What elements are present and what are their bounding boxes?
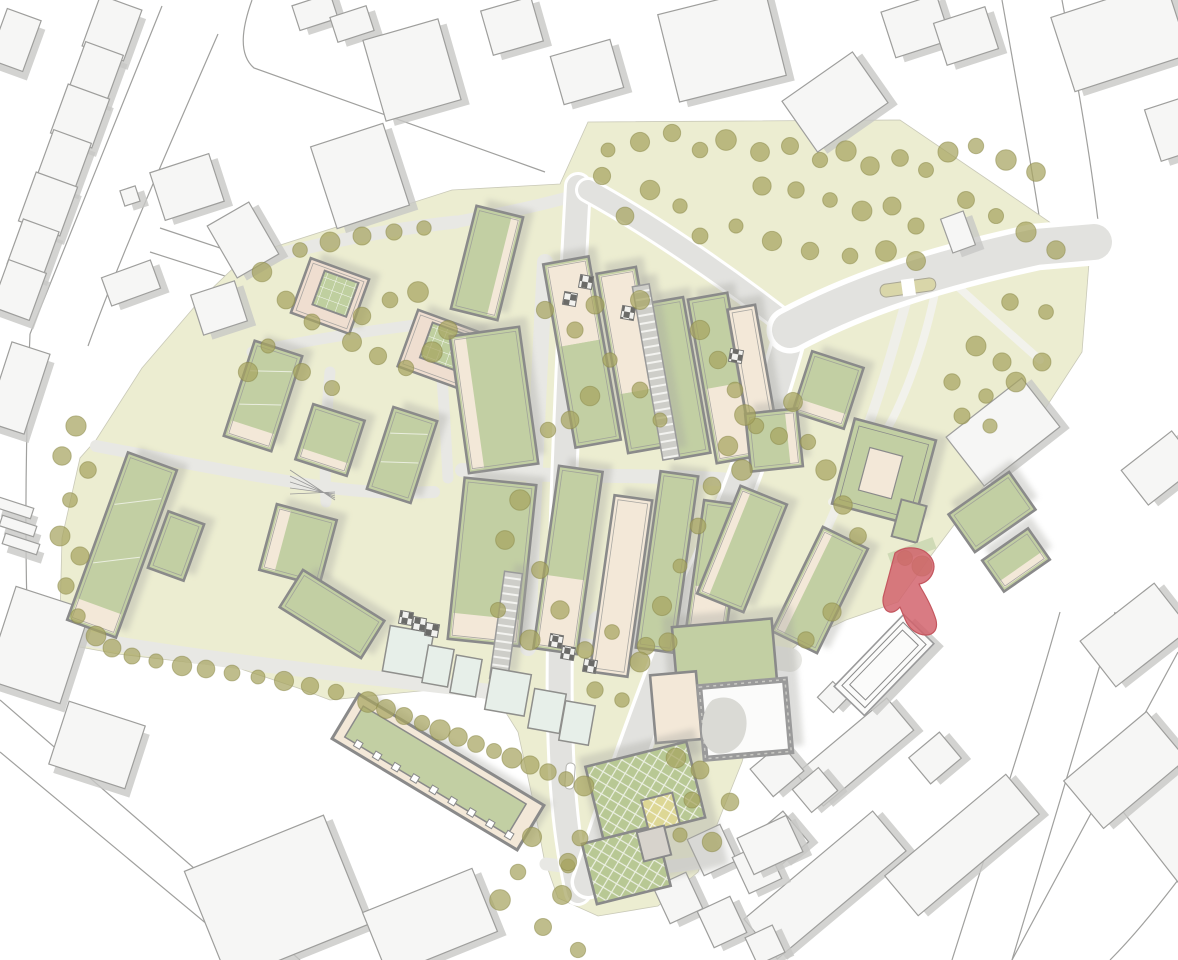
tree (124, 648, 140, 664)
context-building (1121, 427, 1178, 511)
checker-roof-icon (424, 622, 439, 637)
tree (983, 419, 997, 433)
tree (369, 347, 386, 364)
tree (71, 609, 86, 624)
tree (58, 578, 74, 594)
tree (238, 362, 257, 381)
tree (659, 633, 677, 651)
tree (398, 360, 413, 375)
tree (630, 652, 650, 672)
tree (735, 405, 756, 426)
tree (414, 715, 429, 730)
tree (883, 197, 901, 215)
tree (580, 386, 600, 406)
tree (732, 460, 753, 481)
tree (449, 728, 468, 747)
tree (834, 496, 853, 515)
tree (601, 143, 615, 157)
checker-roof-icon (411, 616, 426, 631)
tree (630, 290, 649, 309)
tree (422, 342, 443, 363)
tree (632, 382, 648, 398)
tree (968, 138, 983, 153)
tree (1047, 241, 1065, 259)
context-building (1051, 0, 1178, 98)
tree (490, 890, 511, 911)
context-building (363, 866, 507, 960)
tree (490, 602, 505, 617)
tree (876, 241, 897, 262)
checker-roof-icon (398, 610, 413, 625)
parking-court (450, 655, 482, 697)
tree (358, 692, 379, 713)
tree (703, 477, 721, 495)
tree (567, 322, 583, 338)
tree (521, 756, 539, 774)
tree (988, 208, 1003, 223)
site-plan-svg (0, 0, 1178, 960)
tree (496, 531, 515, 550)
tree (559, 772, 574, 787)
context-building (120, 184, 149, 213)
tree (353, 307, 371, 325)
tree (979, 389, 994, 404)
parking-court (422, 645, 454, 687)
tree (753, 177, 771, 195)
tree (690, 518, 706, 534)
tree (1027, 163, 1046, 182)
tree (294, 364, 311, 381)
tree (615, 693, 630, 708)
tree (342, 332, 361, 351)
tree (861, 157, 880, 176)
tree (522, 827, 541, 846)
tree (172, 656, 191, 675)
tree (751, 143, 770, 162)
checker-roof-icon (548, 633, 563, 648)
tree (1002, 294, 1019, 311)
tree (690, 320, 709, 339)
tree (954, 408, 970, 424)
tree (386, 224, 402, 240)
tree (304, 314, 320, 330)
tree (938, 142, 958, 162)
parking-court (559, 701, 595, 746)
tree (770, 427, 787, 444)
tree (842, 248, 858, 264)
tree (663, 124, 680, 141)
context-building (658, 0, 795, 109)
tree (788, 182, 805, 199)
tree (532, 562, 549, 579)
tree (293, 243, 308, 258)
tree (251, 670, 265, 684)
tree (996, 150, 1017, 171)
tree (540, 422, 555, 437)
tree (66, 416, 86, 436)
tree (652, 596, 671, 615)
tree (561, 411, 579, 429)
checker-roof-icon (560, 645, 575, 660)
tree (252, 262, 272, 282)
tree (691, 761, 709, 779)
tree (919, 163, 934, 178)
context-building (1080, 579, 1178, 692)
tree (666, 748, 686, 768)
tree (800, 434, 815, 449)
context-building (184, 813, 376, 960)
tree (439, 321, 458, 340)
tree (673, 559, 687, 573)
tree (261, 339, 275, 353)
tree (80, 462, 97, 479)
tree (718, 436, 737, 455)
tree (395, 707, 412, 724)
tree (487, 744, 502, 759)
tree (716, 130, 737, 151)
tree (709, 351, 727, 369)
tree (801, 242, 819, 260)
tree (729, 219, 743, 233)
tree (692, 228, 708, 244)
tree (63, 493, 78, 508)
tree (408, 282, 429, 303)
tree (320, 232, 340, 252)
tree (781, 137, 798, 154)
tree (908, 218, 924, 234)
tree (534, 918, 551, 935)
context-building (0, 342, 57, 443)
context-building (909, 728, 971, 790)
tree (587, 682, 603, 698)
tree (377, 700, 396, 719)
tree (86, 626, 106, 646)
tree (468, 736, 485, 753)
tree (993, 353, 1011, 371)
tree (823, 603, 841, 621)
tree (684, 792, 700, 808)
tree (551, 601, 569, 619)
tree (577, 642, 594, 659)
tree (692, 142, 708, 158)
tree (572, 830, 588, 846)
tree (673, 828, 687, 842)
tree (605, 625, 620, 640)
tree (353, 227, 371, 245)
tree (653, 413, 667, 427)
tree (574, 776, 594, 796)
tree (1006, 372, 1026, 392)
checker-roof-icon (582, 658, 597, 673)
tree (944, 374, 960, 390)
tree (852, 201, 872, 221)
tree (850, 528, 867, 545)
context-building (0, 8, 48, 80)
tree (510, 490, 531, 511)
tree (553, 886, 572, 905)
context-street-line (1110, 880, 1178, 960)
tree (906, 251, 925, 270)
tree (559, 853, 576, 870)
tree (816, 460, 836, 480)
checker-roof-icon (562, 291, 577, 306)
tree (823, 193, 838, 208)
tree (53, 447, 71, 465)
tree (430, 720, 450, 740)
tree (616, 207, 634, 225)
tree (673, 199, 687, 213)
tree (510, 864, 526, 880)
tree (328, 684, 344, 700)
tree (536, 301, 553, 318)
tree (836, 141, 856, 161)
tree (277, 291, 295, 309)
tree (502, 748, 522, 768)
tree (702, 832, 721, 851)
tree (1016, 222, 1036, 242)
site-plan-canvas (0, 0, 1178, 960)
context-building (1145, 97, 1178, 168)
tree (224, 665, 240, 681)
tree (301, 677, 318, 694)
tree (812, 152, 827, 167)
tree (570, 942, 585, 957)
tree (630, 132, 649, 151)
tree (640, 180, 660, 200)
tree (71, 547, 89, 565)
context-building (47, 701, 152, 797)
tree (520, 630, 540, 650)
tree (1039, 305, 1054, 320)
tree (586, 296, 604, 314)
context-building (101, 258, 169, 313)
tree (727, 382, 743, 398)
tree (324, 380, 339, 395)
tree (721, 793, 739, 811)
tree (50, 526, 70, 546)
checker-roof-icon (578, 274, 593, 289)
tree (593, 167, 610, 184)
checker-roof-icon (728, 348, 743, 363)
parking-court (485, 668, 532, 716)
tree (149, 654, 163, 668)
tree (784, 393, 803, 412)
tree (103, 639, 121, 657)
context-building (550, 37, 632, 111)
tree (966, 336, 986, 356)
tree (958, 192, 975, 209)
tree (197, 660, 215, 678)
tree (798, 632, 815, 649)
tree (382, 292, 398, 308)
tree (892, 150, 909, 167)
tree (603, 353, 617, 367)
tree (540, 764, 557, 781)
checker-roof-icon (620, 305, 635, 320)
context-building (481, 0, 552, 62)
tree (1033, 353, 1051, 371)
tree (274, 671, 293, 690)
tree (762, 231, 781, 250)
tree (417, 221, 431, 235)
